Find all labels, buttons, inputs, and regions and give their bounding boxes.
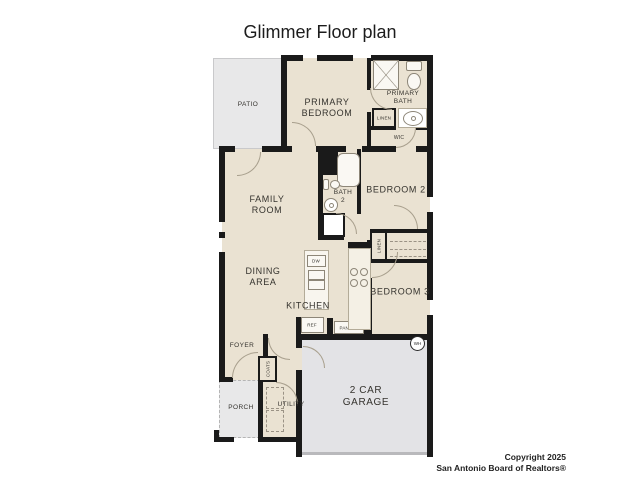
sink — [403, 111, 423, 126]
bath2-label: BATH 2 — [331, 189, 355, 205]
floor-plan: Glimmer Floor plan — [0, 0, 640, 480]
wall-segment — [281, 55, 287, 152]
stove-burner — [360, 279, 368, 287]
dining-area-label: DINING AREA — [241, 266, 285, 288]
wall-segment — [416, 146, 433, 152]
wall-segment — [219, 377, 233, 382]
wall-segment — [262, 146, 292, 152]
island-sink — [308, 280, 325, 290]
wall-segment — [258, 377, 263, 442]
wall-segment — [317, 55, 353, 61]
wall-segment — [327, 318, 333, 334]
family-room-label: FAMILY ROOM — [244, 194, 290, 216]
dishwasher-label: DW — [312, 258, 320, 263]
garage-door-line — [302, 452, 427, 455]
wall-segment — [367, 112, 371, 149]
dryer — [266, 410, 284, 432]
kitchen-counter — [348, 248, 371, 330]
wall-segment — [219, 146, 225, 222]
closet-shelf — [390, 249, 426, 250]
wall-segment — [367, 58, 371, 90]
wall-segment — [296, 334, 302, 348]
coats-closet-label: COATS — [265, 361, 270, 377]
wall-segment — [219, 252, 225, 382]
water-heater-label: WH — [414, 341, 422, 346]
linen-closet-hall-label: LINEN — [376, 239, 381, 253]
porch-label: PORCH — [228, 404, 253, 412]
foyer-label: FOYER — [230, 342, 254, 350]
patio-label: PATIO — [238, 101, 259, 109]
kitchen-label: KITCHEN — [286, 301, 330, 312]
linen-closet-primary-label: LINEN — [377, 115, 391, 120]
stove-burner — [350, 268, 358, 276]
primary-bath-label: PRIMARY BATH — [383, 90, 423, 106]
utility-label: UTILITY — [278, 401, 305, 409]
copyright-notice: Copyright 2025 San Antonio Board of Real… — [436, 452, 566, 473]
refrigerator-label: REF — [307, 322, 317, 327]
plan-title: Glimmer Floor plan — [0, 22, 640, 43]
wall-segment — [222, 146, 235, 152]
shower — [373, 60, 399, 90]
toilet — [404, 61, 424, 90]
copyright-line2: San Antonio Board of Realtors® — [436, 463, 566, 474]
water-heater: WH — [410, 336, 425, 351]
stove-burner — [360, 268, 368, 276]
closet-shelf — [390, 241, 426, 242]
wall-segment — [214, 437, 234, 442]
bedroom3-label: BEDROOM 3 — [370, 287, 429, 298]
bathtub — [337, 153, 360, 187]
bedroom2-label: BEDROOM 2 — [366, 185, 425, 196]
garage-label: 2 CAR GARAGE — [336, 385, 396, 409]
copyright-line1: Copyright 2025 — [436, 452, 566, 463]
island-sink — [308, 270, 325, 280]
primary-bedroom-label: PRIMARY BEDROOM — [297, 97, 357, 119]
wall-segment — [219, 232, 225, 238]
stove-burner — [350, 279, 358, 287]
wall-segment — [296, 370, 302, 457]
